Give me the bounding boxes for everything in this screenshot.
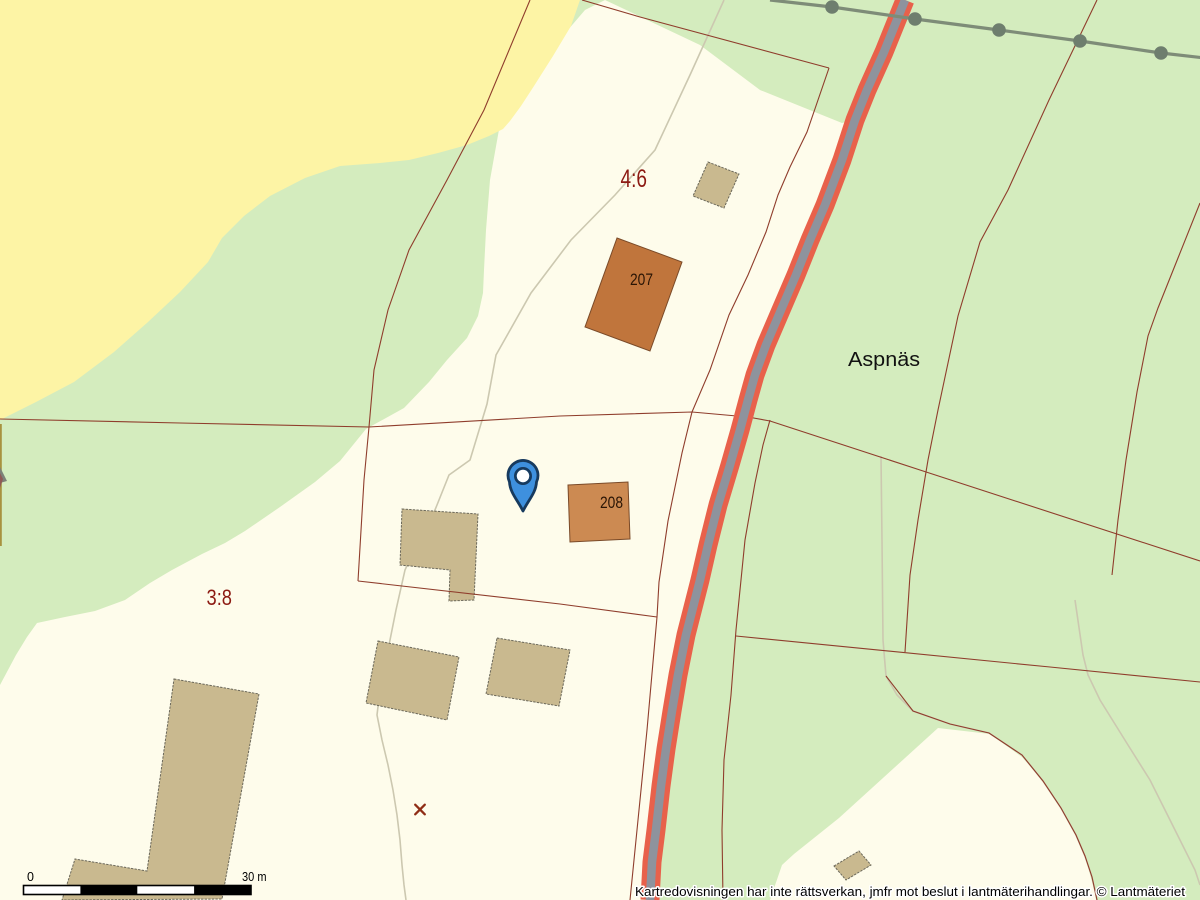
svg-text:207: 207 <box>630 271 653 289</box>
svg-text:208: 208 <box>600 493 623 512</box>
svg-text:4:6: 4:6 <box>621 165 648 193</box>
svg-text:Kartredovisningen har inte rät: Kartredovisningen har inte rättsverkan, … <box>635 884 1185 899</box>
svg-text:3:8: 3:8 <box>207 585 233 610</box>
svg-text:30 m: 30 m <box>242 870 267 884</box>
svg-text:Aspnäs: Aspnäs <box>848 349 920 371</box>
svg-text:0: 0 <box>27 870 34 884</box>
